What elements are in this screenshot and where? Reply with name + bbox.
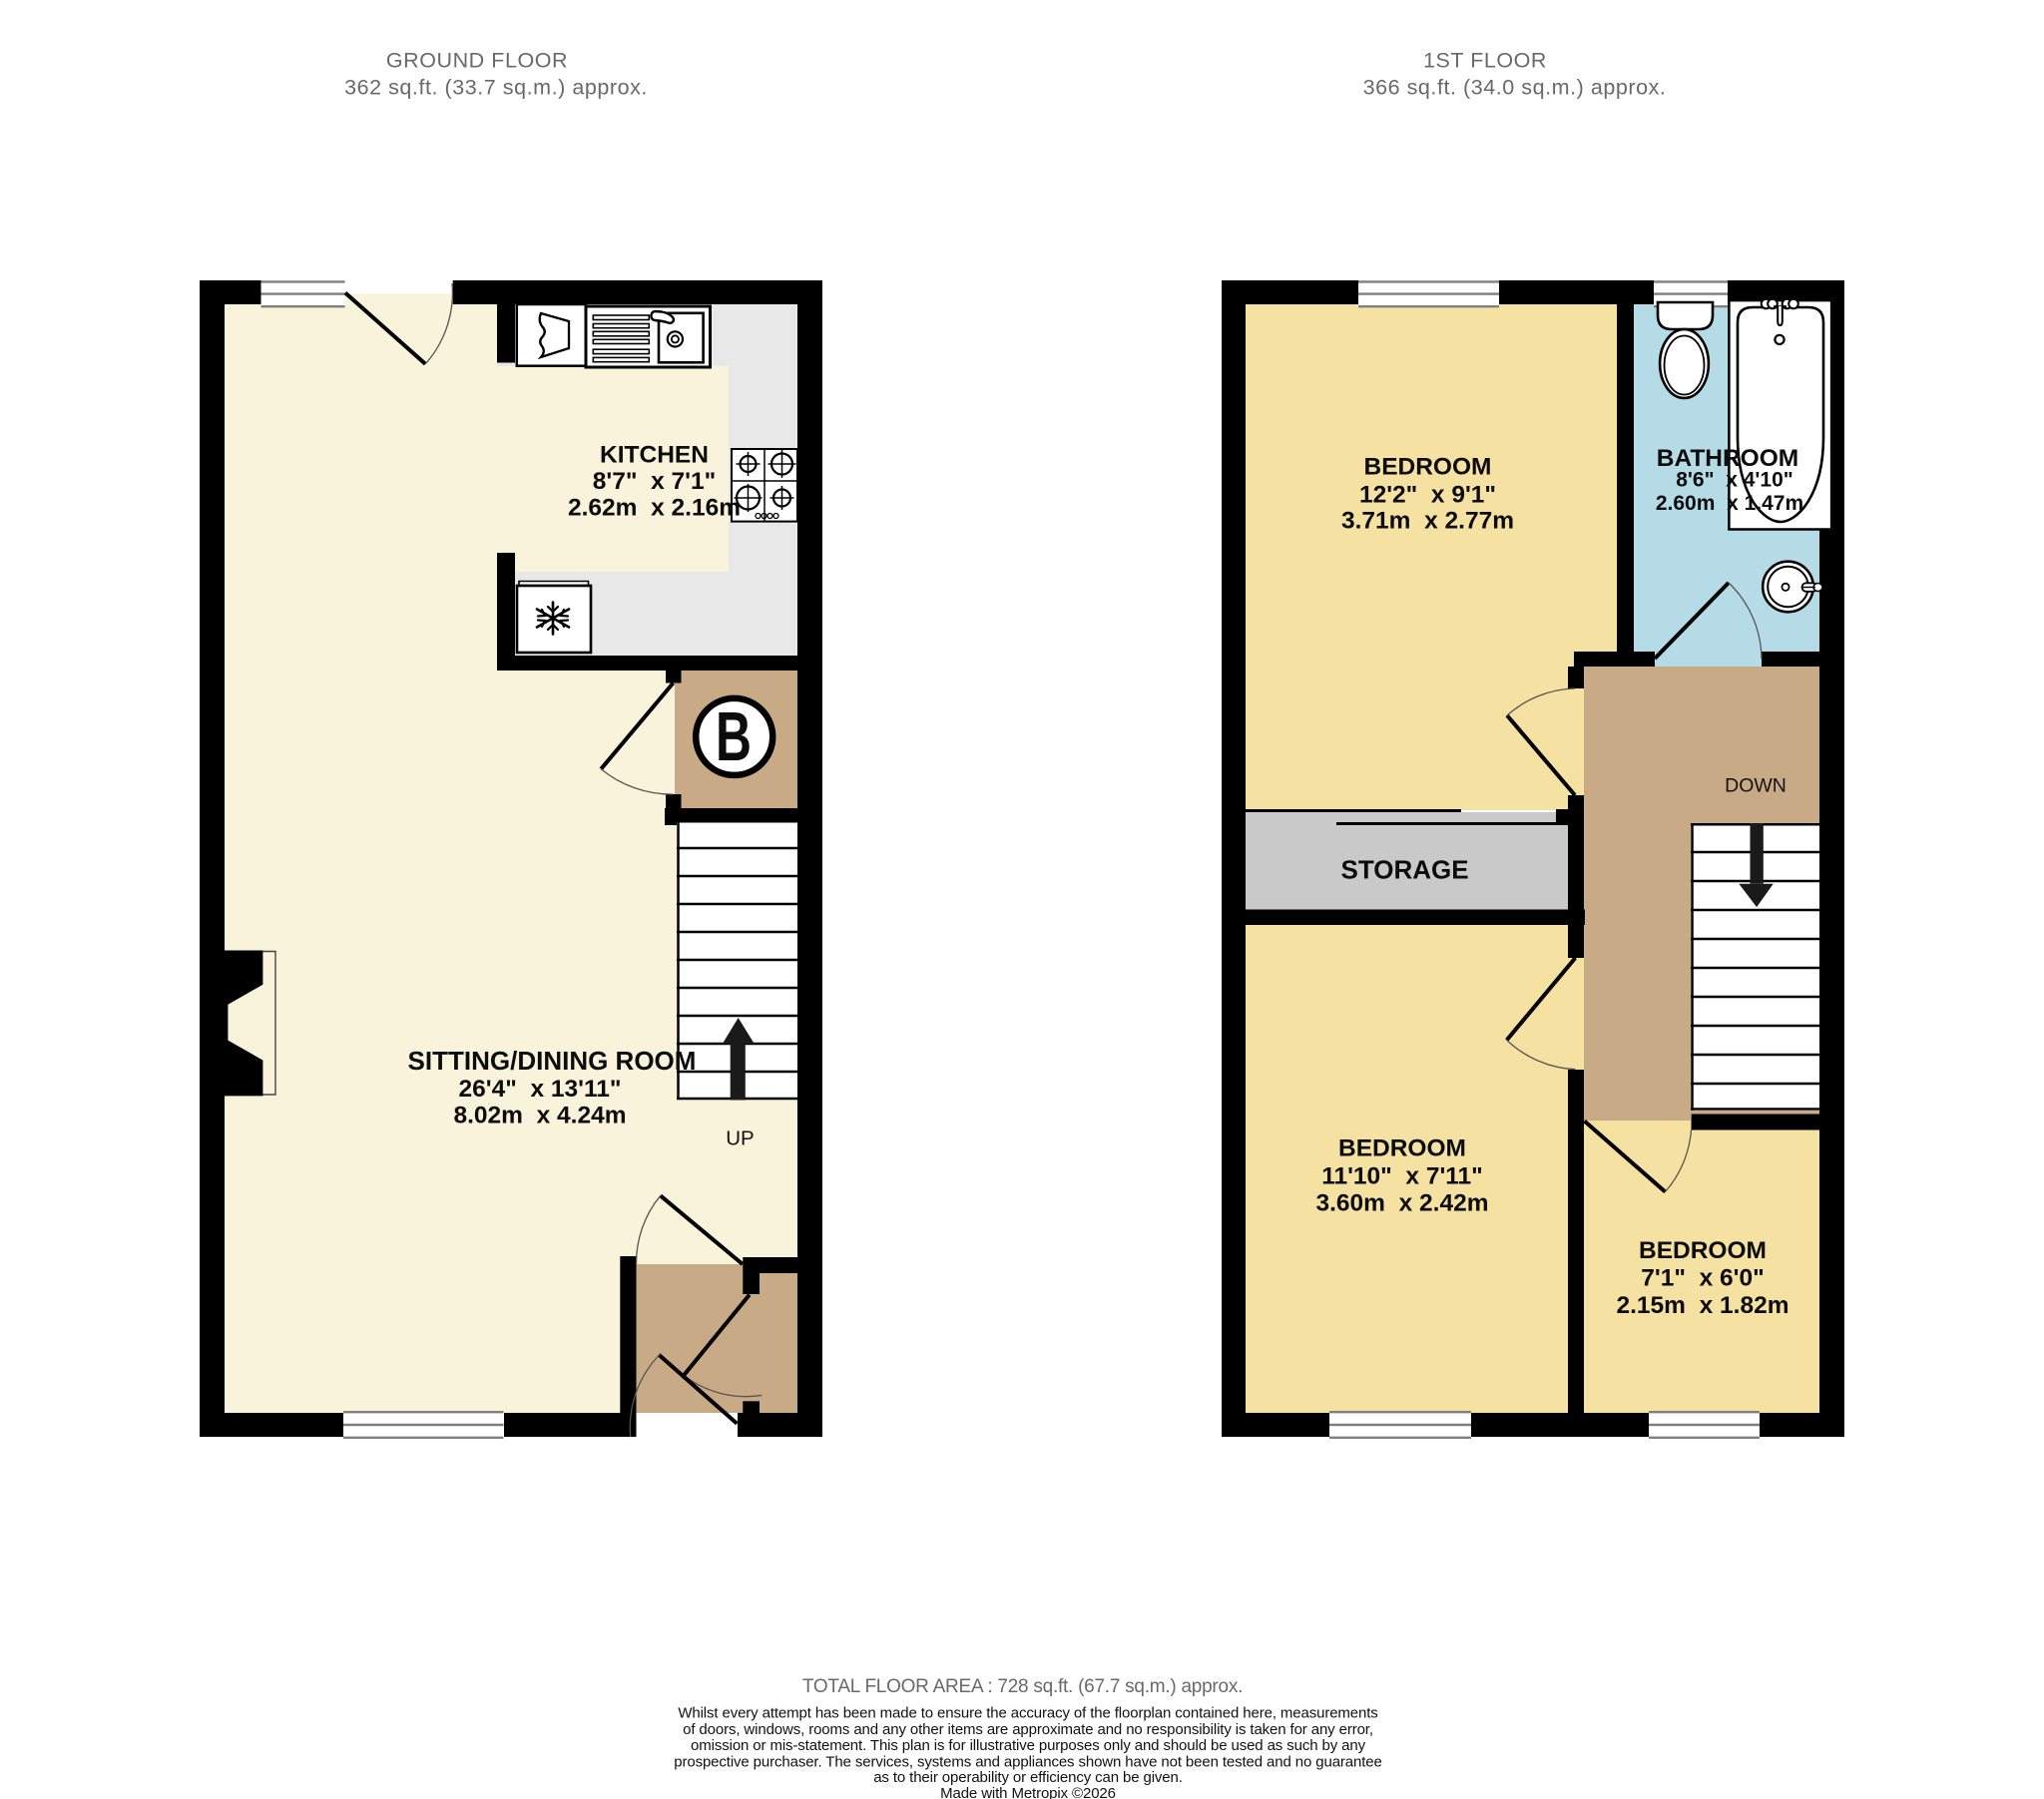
svg-text:BEDROOM: BEDROOM: [1364, 453, 1492, 480]
svg-text:Made with Metropix ©2026: Made with Metropix ©2026: [940, 1785, 1116, 1799]
svg-text:Whilst every attempt has been: Whilst every attempt has been made to en…: [678, 1705, 1377, 1722]
svg-text:GROUND FLOOR: GROUND FLOOR: [386, 48, 568, 72]
svg-text:omission or mis-statement. Thi: omission or mis-statement. This plan is …: [691, 1737, 1366, 1754]
svg-text:UP: UP: [726, 1127, 754, 1150]
svg-text:B: B: [716, 697, 752, 775]
svg-text:366 sq.ft. (34.0 sq.m.) approx: 366 sq.ft. (34.0 sq.m.) approx.: [1363, 76, 1667, 100]
svg-text:8.02m x 4.24m: 8.02m x 4.24m: [454, 1103, 627, 1129]
svg-text:prospective purchaser. The ser: prospective purchaser. The services, sys…: [674, 1753, 1381, 1770]
svg-text:2.62m x 2.16m: 2.62m x 2.16m: [568, 495, 741, 522]
svg-text:1ST FLOOR: 1ST FLOOR: [1423, 48, 1547, 72]
svg-text:DOWN: DOWN: [1725, 775, 1787, 797]
svg-text:11'10" x 7'11": 11'10" x 7'11": [1321, 1163, 1483, 1190]
svg-text:3.60m x 2.42m: 3.60m x 2.42m: [1316, 1190, 1489, 1217]
svg-text:STORAGE: STORAGE: [1341, 855, 1469, 885]
svg-text:TOTAL FLOOR AREA : 728 sq.ft.: TOTAL FLOOR AREA : 728 sq.ft. (67.7 sq.m…: [802, 1676, 1243, 1697]
svg-text:7'1" x 6'0": 7'1" x 6'0": [1641, 1265, 1764, 1292]
svg-text:KITCHEN: KITCHEN: [600, 442, 709, 469]
svg-text:3.71m x 2.77m: 3.71m x 2.77m: [1341, 507, 1514, 534]
svg-text:BEDROOM: BEDROOM: [1639, 1237, 1767, 1264]
svg-text:BEDROOM: BEDROOM: [1338, 1135, 1466, 1162]
svg-text:8'7" x 7'1": 8'7" x 7'1": [593, 468, 716, 495]
svg-text:2.15m x 1.82m: 2.15m x 1.82m: [1617, 1292, 1789, 1319]
svg-text:362 sq.ft. (33.7 sq.m.) approx: 362 sq.ft. (33.7 sq.m.) approx.: [344, 76, 648, 100]
svg-text:SITTING/DINING ROOM: SITTING/DINING ROOM: [408, 1046, 697, 1076]
svg-text:of doors, windows, rooms and a: of doors, windows, rooms and any other i…: [683, 1721, 1373, 1738]
svg-text:2.60m x 1.47m: 2.60m x 1.47m: [1656, 492, 1803, 515]
svg-text:12'2" x 9'1": 12'2" x 9'1": [1359, 481, 1496, 508]
svg-text:8'6" x 4'10": 8'6" x 4'10": [1676, 469, 1792, 492]
svg-text:as to their operability or eff: as to their operability or efficiency ca…: [873, 1769, 1183, 1786]
svg-text:26'4" x 13'11": 26'4" x 13'11": [459, 1076, 622, 1103]
